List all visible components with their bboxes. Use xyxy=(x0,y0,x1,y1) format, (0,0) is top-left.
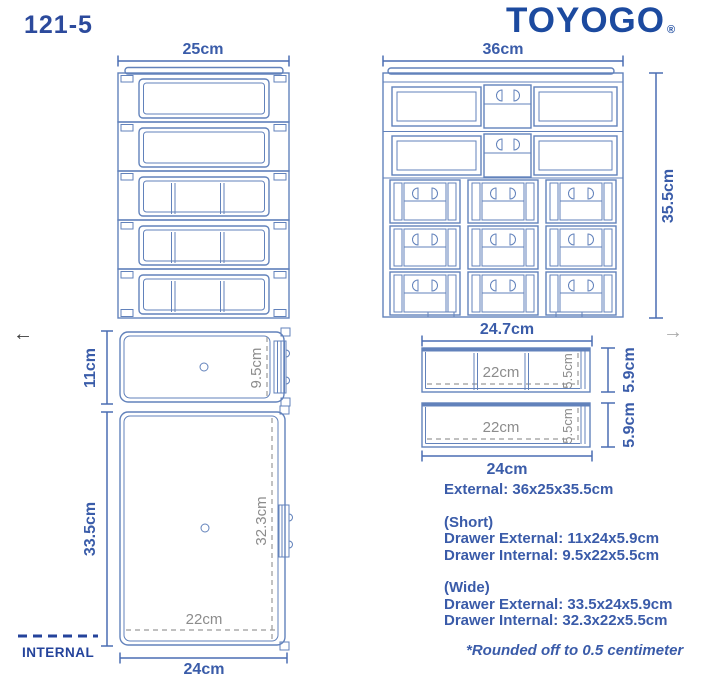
dim-label-short-drawer-internal-depth: 9.5cm xyxy=(248,348,265,389)
spec-footnote: *Rounded off to 0.5 centimeter xyxy=(466,643,683,660)
dim-label-short-drawer-external-width: 24.7cm xyxy=(480,321,534,338)
internal-legend-label: INTERNAL xyxy=(22,645,94,660)
small-drawer-front xyxy=(546,226,616,269)
drawer-dividers xyxy=(172,281,225,312)
small-drawer-front xyxy=(390,272,460,315)
dim-label-wide-drawer-external-depth: 33.5cm xyxy=(82,502,99,556)
dim-label-cabinet-width-side: 25cm xyxy=(183,41,224,58)
dim-label-short-drawer-external-height: 5.9cm xyxy=(621,347,638,392)
dim-label-wide-drawer-internal-width: 22cm xyxy=(186,611,223,628)
dim-label-short-drawer-internal-height: 5.5cm xyxy=(560,353,575,388)
dim-label-short-drawer-internal-width: 22cm xyxy=(483,364,520,381)
spec-short-group: (Short) Drawer External: 11x24x5.9cm Dra… xyxy=(444,515,683,565)
dim-label-wide-drawer-front-external-height: 5.9cm xyxy=(621,402,638,447)
dim-label-wide-drawer-front-internal-height: 5.5cm xyxy=(560,408,575,443)
small-drawer-front xyxy=(546,272,616,315)
side-drawer-unit xyxy=(118,220,289,269)
small-drawer-front xyxy=(390,180,460,223)
product-dimension-diagram: 121-5 TOYOGO ® ← → xyxy=(0,0,702,675)
spec-wide-drawer-external: Drawer External: 33.5x24x5.9cm xyxy=(444,597,683,614)
small-drawer-front xyxy=(468,272,538,315)
spec-wide-group: (Wide) Drawer External: 33.5x24x5.9cm Dr… xyxy=(444,580,683,630)
dim-label-short-drawer-external-depth: 11cm xyxy=(82,348,99,388)
dimension-specs: External: 36x25x35.5cm (Short) Drawer Ex… xyxy=(444,482,683,659)
dim-label-wide-drawer-internal-depth: 32.3cm xyxy=(253,496,270,545)
dim-label-cabinet-height: 35.5cm xyxy=(660,169,677,223)
spec-short-drawer-internal: Drawer Internal: 9.5x22x5.5cm xyxy=(444,548,683,565)
drawer-dividers xyxy=(172,232,225,263)
small-drawer-front xyxy=(468,180,538,223)
dim-label-wide-drawer-front-external-width: 24cm xyxy=(487,461,528,478)
dim-label-cabinet-width-front: 36cm xyxy=(483,41,524,58)
side-drawer-unit xyxy=(118,73,289,122)
small-drawer-front xyxy=(546,180,616,223)
spec-external: External: 36x25x35.5cm xyxy=(444,482,683,499)
cabinet-row-wide-drawer xyxy=(392,85,617,128)
side-drawer-unit xyxy=(118,171,289,220)
dim-label-wide-drawer-front-internal-width: 22cm xyxy=(483,419,520,436)
cabinet-side-view-drawing xyxy=(118,56,289,319)
spec-short-title: (Short) xyxy=(444,515,683,532)
spec-wide-title: (Wide) xyxy=(444,580,683,597)
small-drawer-front xyxy=(468,226,538,269)
spec-wide-drawer-internal: Drawer Internal: 32.3x22x5.5cm xyxy=(444,613,683,630)
drawer-dividers xyxy=(172,183,225,214)
small-drawer-front xyxy=(390,226,460,269)
spec-short-drawer-external: Drawer External: 11x24x5.9cm xyxy=(444,531,683,548)
cabinet-row-wide-drawer xyxy=(392,134,617,177)
dim-label-wide-drawer-external-width: 24cm xyxy=(184,661,225,675)
side-drawer-unit xyxy=(118,122,289,171)
cabinet-front-view-drawing xyxy=(383,56,663,319)
side-drawer-unit xyxy=(118,269,289,318)
